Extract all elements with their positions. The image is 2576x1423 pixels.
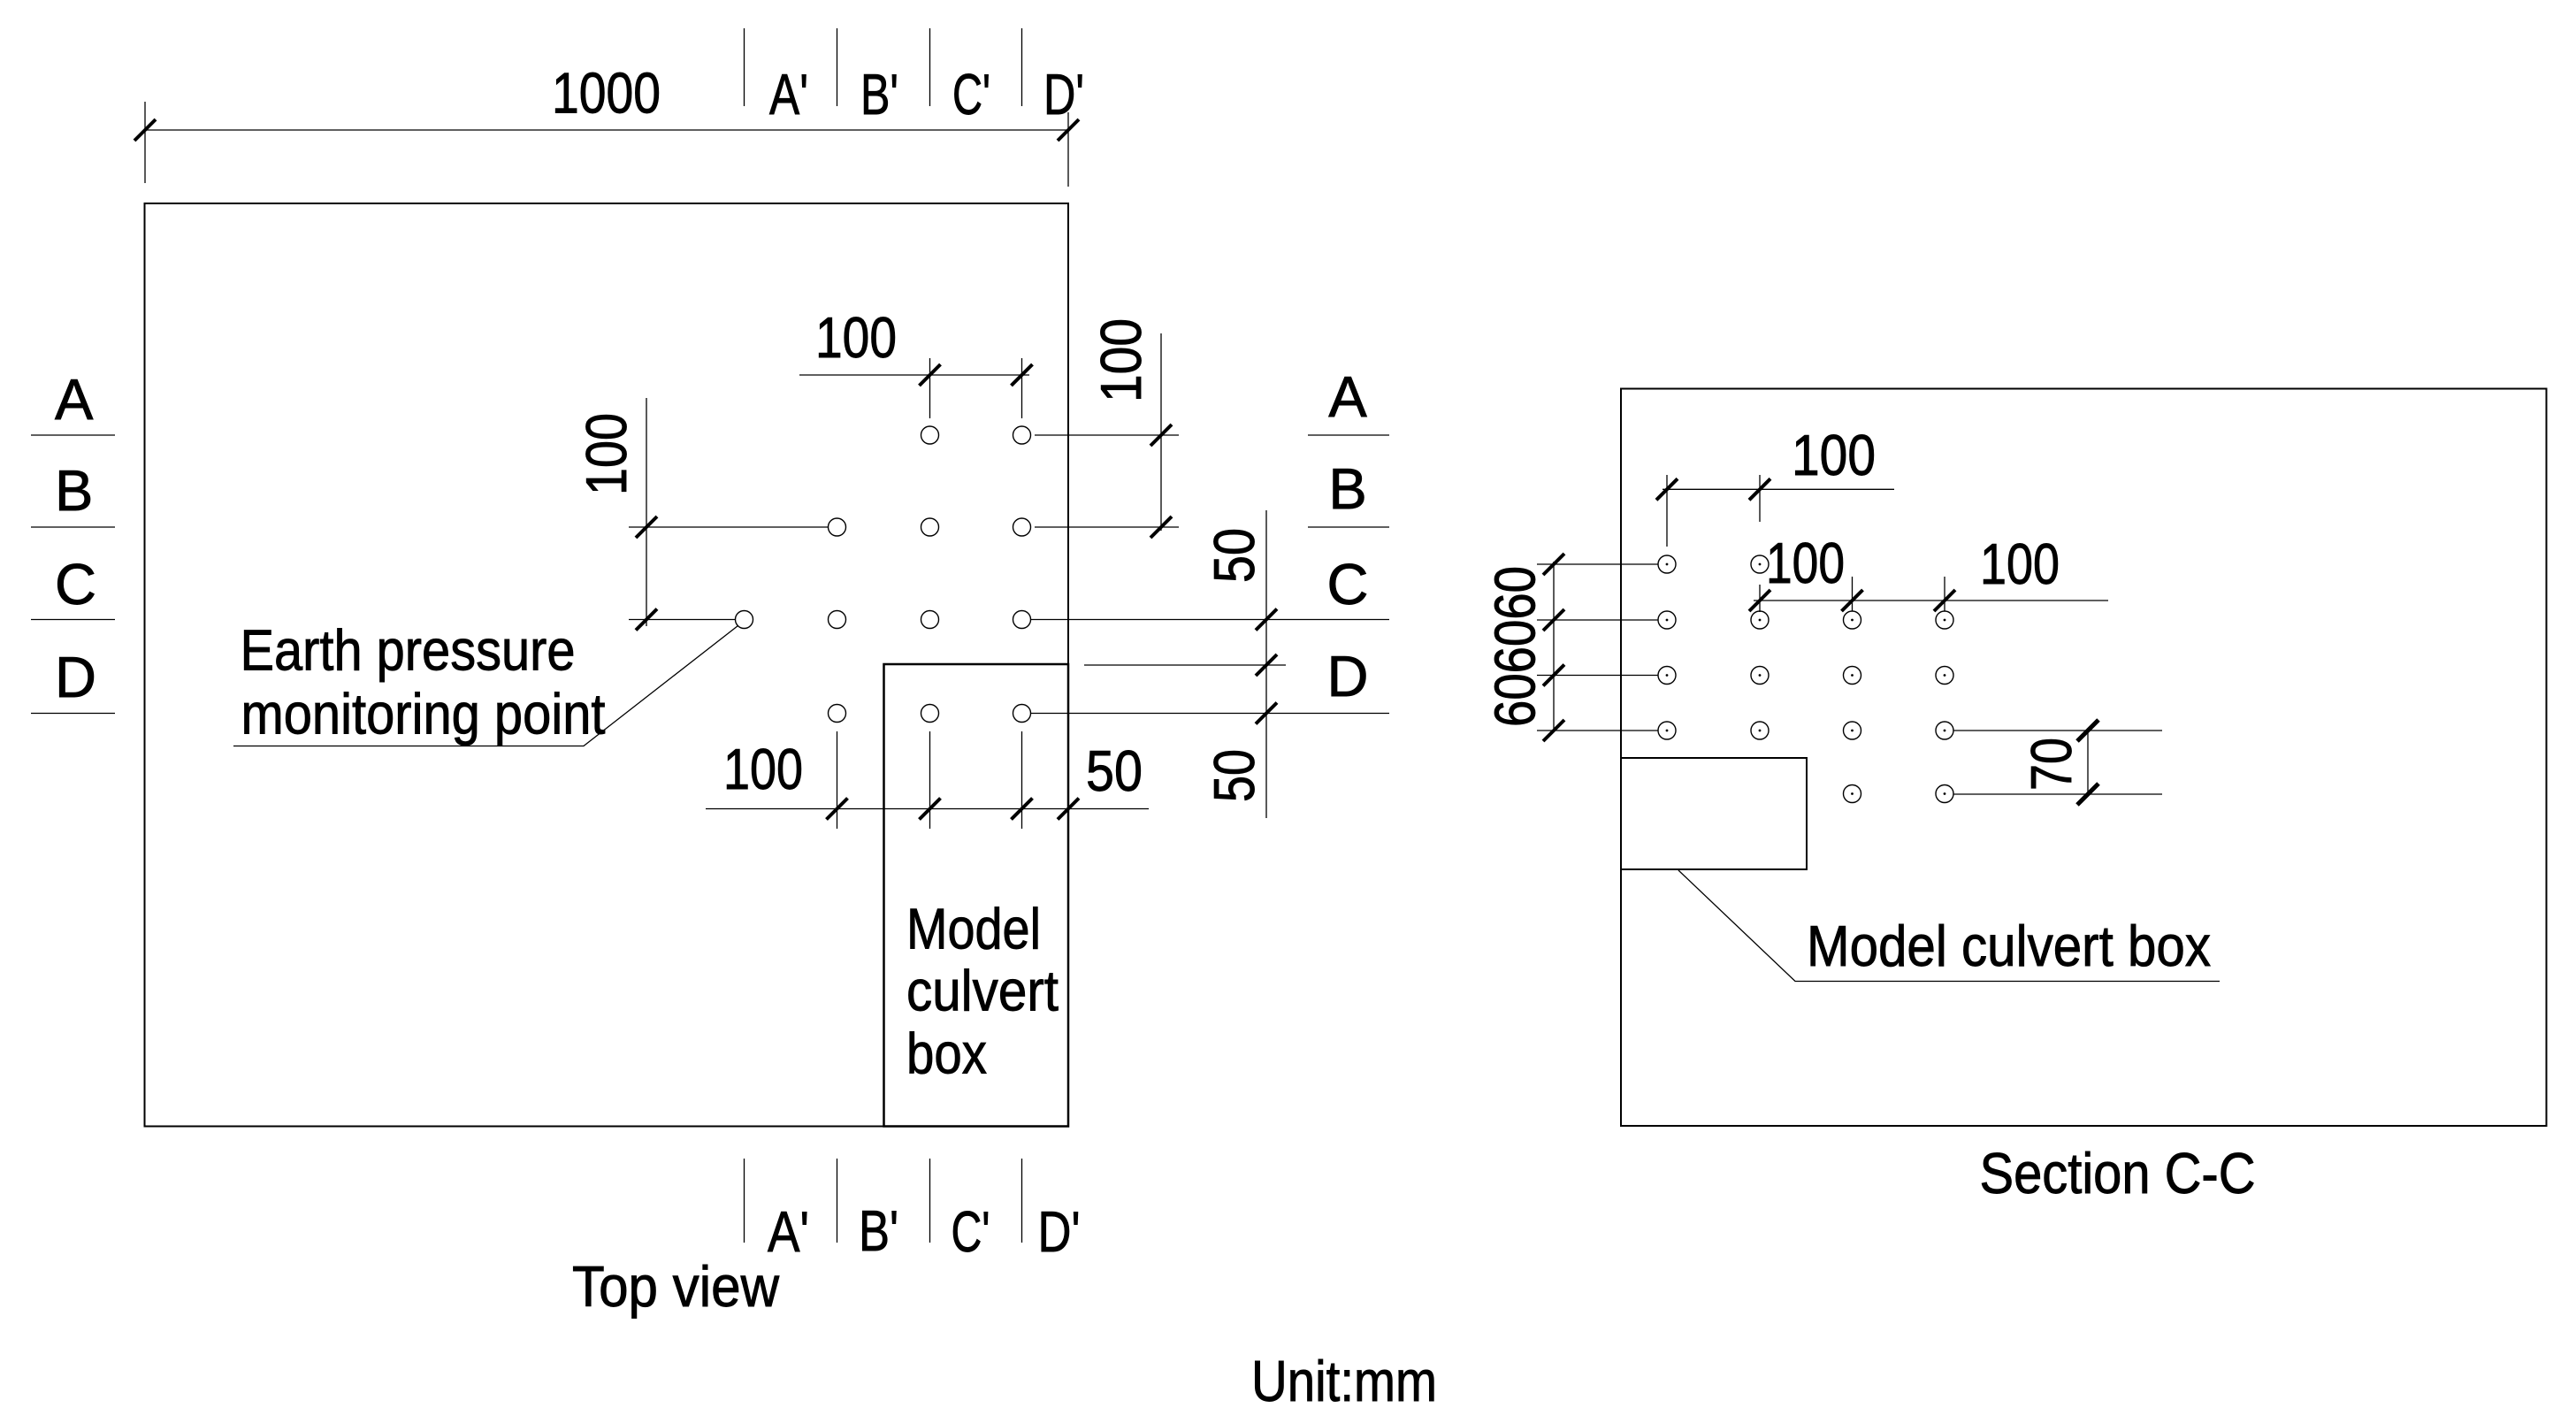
svg-text:A: A (1328, 364, 1367, 429)
svg-text:100: 100 (815, 305, 897, 370)
svg-text:D': D' (1043, 62, 1084, 126)
svg-text:B: B (1328, 456, 1366, 521)
svg-text:50: 50 (1202, 528, 1266, 583)
svg-text:Unit:mm: Unit:mm (1251, 1349, 1437, 1413)
svg-text:1000: 1000 (552, 61, 661, 126)
svg-text:B': B' (859, 1198, 898, 1263)
svg-text:Section C-C: Section C-C (1980, 1141, 2256, 1205)
svg-text:A': A' (769, 62, 808, 126)
svg-text:C: C (1327, 552, 1369, 616)
svg-text:B': B' (860, 62, 898, 126)
svg-text:D: D (1327, 644, 1369, 708)
svg-text:monitoring point: monitoring point (241, 682, 606, 746)
svg-text:606060: 606060 (1483, 566, 1548, 727)
svg-text:D': D' (1038, 1199, 1081, 1264)
svg-text:culvert: culvert (906, 959, 1059, 1023)
svg-text:Model: Model (906, 897, 1041, 961)
svg-text:B: B (55, 458, 93, 523)
svg-text:A: A (55, 367, 94, 432)
svg-text:Earth pressure: Earth pressure (241, 618, 576, 683)
svg-text:C': C' (952, 1199, 990, 1264)
svg-text:100: 100 (1792, 423, 1876, 487)
svg-text:100: 100 (1766, 531, 1845, 595)
svg-text:C': C' (952, 62, 990, 126)
svg-text:100: 100 (574, 413, 638, 495)
svg-text:Top view: Top view (572, 1254, 780, 1319)
svg-text:100: 100 (1089, 318, 1153, 402)
svg-text:D: D (55, 645, 96, 709)
svg-text:50: 50 (1086, 738, 1143, 803)
svg-text:50: 50 (1202, 749, 1266, 802)
svg-text:Model culvert box: Model culvert box (1807, 914, 2211, 978)
svg-text:100: 100 (723, 737, 803, 801)
svg-text:C: C (55, 552, 96, 616)
svg-text:box: box (906, 1021, 987, 1086)
svg-text:100: 100 (1980, 532, 2060, 596)
svg-text:70: 70 (2019, 738, 2083, 791)
